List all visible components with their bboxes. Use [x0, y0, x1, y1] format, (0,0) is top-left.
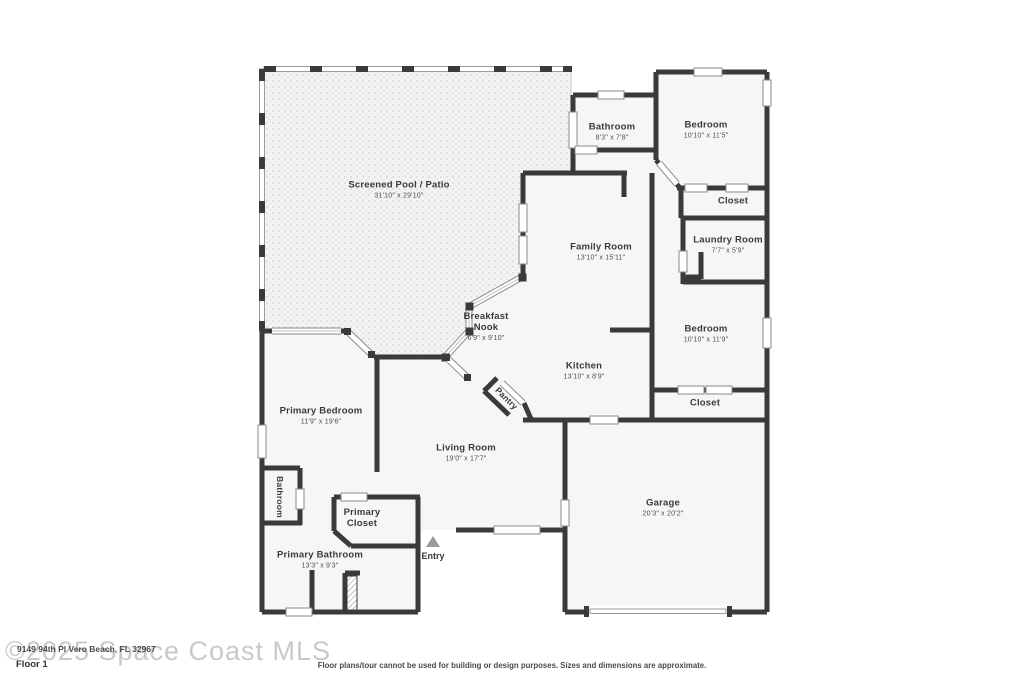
property-address: 9149 94th Pl Vero Beach, FL 32967	[17, 644, 156, 654]
floorplan-page: Screened Pool / Patio 31'10" x 29'10" Ba…	[0, 0, 1024, 683]
floor-label: Floor 1	[16, 659, 48, 670]
entry-label: Entry	[421, 551, 444, 561]
entry-arrow-icon	[426, 536, 440, 547]
floorplan-drawing	[0, 0, 1024, 683]
shower-hatch	[347, 576, 357, 610]
disclaimer-text: Floor plans/tour cannot be used for buil…	[318, 661, 707, 670]
garage-door	[584, 605, 732, 618]
